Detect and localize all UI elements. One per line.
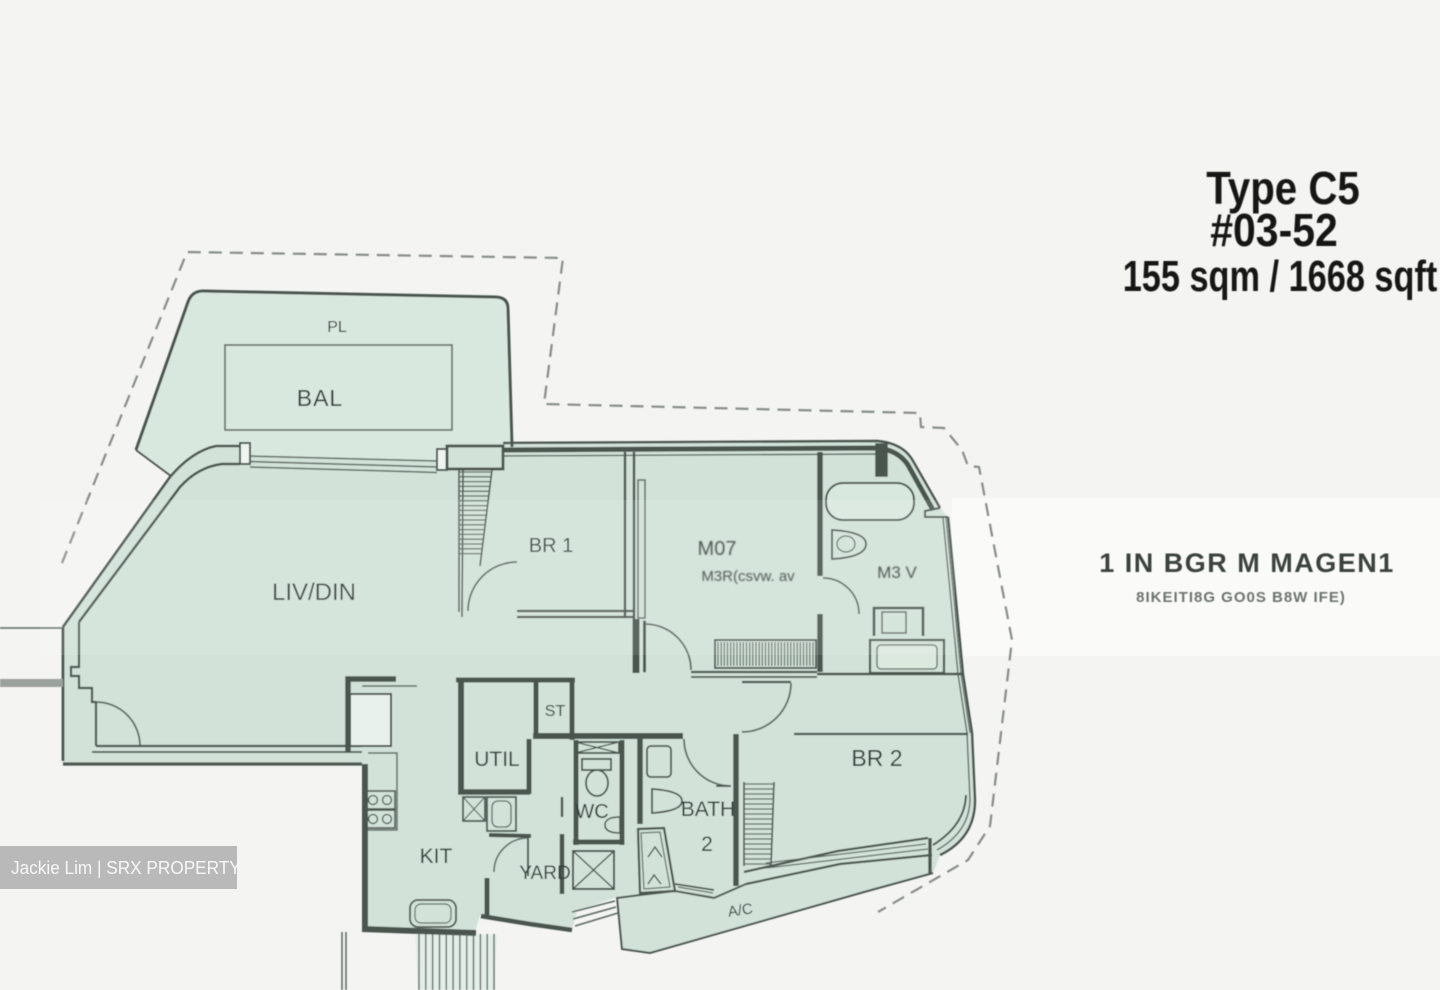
svg-text:WC: WC (575, 801, 608, 823)
svg-text:Jackie Lim | SRX PROPERTY: Jackie Lim | SRX PROPERTY (11, 857, 241, 878)
svg-text:A/C: A/C (727, 900, 754, 920)
svg-text:2: 2 (701, 833, 713, 856)
svg-text:BR 2: BR 2 (851, 745, 902, 771)
svg-text:KIT: KIT (420, 845, 453, 868)
svg-text:155 sqm / 1668 sqft: 155 sqm / 1668 sqft (1123, 252, 1438, 301)
svg-text:UTIL: UTIL (474, 748, 520, 771)
svg-text:#03-52: #03-52 (1210, 206, 1337, 257)
svg-text:ST: ST (545, 703, 566, 720)
svg-text:BAL: BAL (297, 385, 343, 411)
svg-text:1 IN BGR M MAGEN1: 1 IN BGR M MAGEN1 (1099, 548, 1395, 578)
svg-text:YARD: YARD (519, 863, 570, 884)
svg-text:BATH: BATH (681, 798, 735, 821)
svg-text:PL: PL (327, 319, 347, 336)
svg-text:8IKEITI8G GO0S B8W IFE): 8IKEITI8G GO0S B8W IFE) (1136, 589, 1346, 606)
